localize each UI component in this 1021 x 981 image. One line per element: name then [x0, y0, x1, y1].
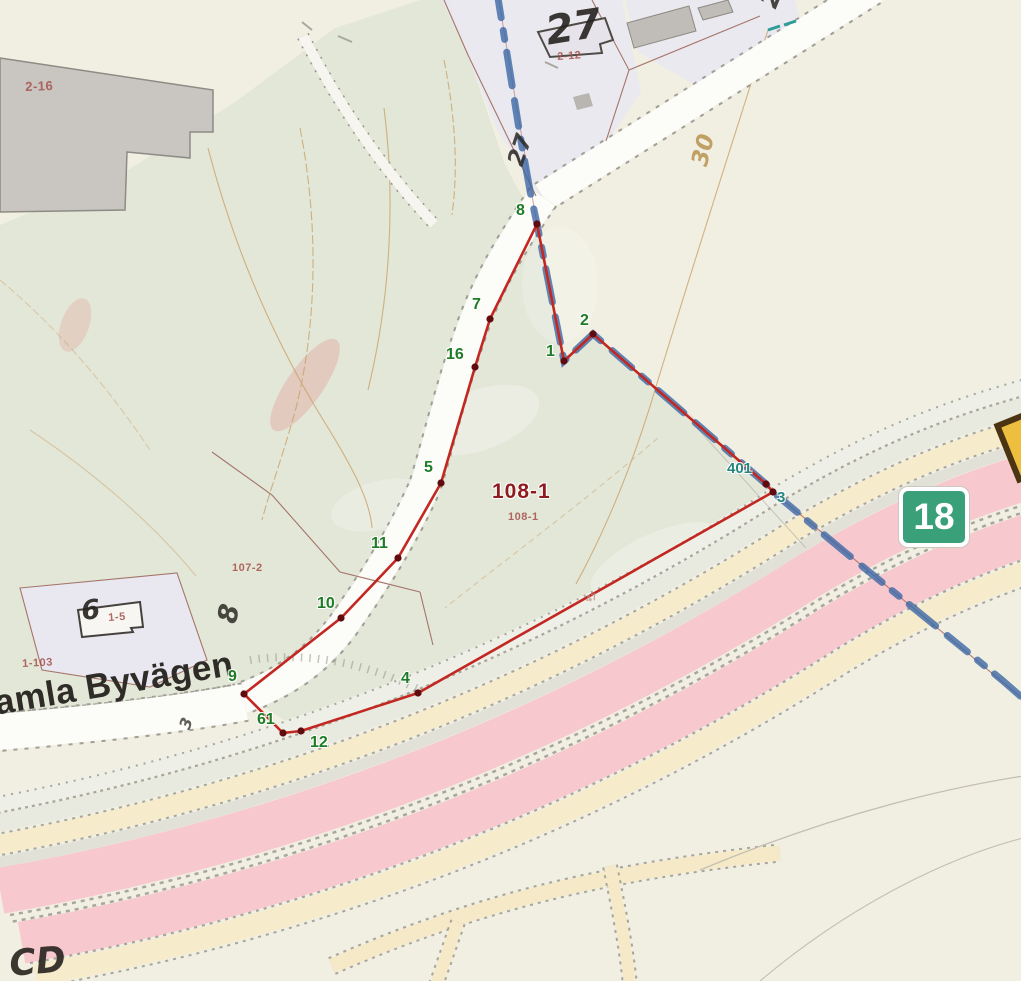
vertex-dot-61[interactable]: [279, 729, 286, 736]
vertex-dot-5[interactable]: [437, 479, 444, 486]
vertex-dot-401[interactable]: [762, 480, 769, 487]
vertex-dot-10[interactable]: [337, 614, 344, 621]
vertex-dot-9[interactable]: [240, 690, 247, 697]
vertex-dot-8[interactable]: [533, 220, 540, 227]
road-number-badge-18: 18: [899, 487, 969, 547]
map-artwork: [0, 0, 1021, 981]
vertex-dot-1[interactable]: [560, 357, 567, 364]
vertex-dot-12[interactable]: [297, 727, 304, 734]
vertex-dot-2[interactable]: [589, 330, 596, 337]
vertex-dot-7[interactable]: [486, 315, 493, 322]
vertex-dot-4[interactable]: [414, 689, 421, 696]
road-number-text: 18: [913, 496, 954, 538]
map-canvas[interactable]: 2-16272-12212730108-1108-1107-21-10361-5…: [0, 0, 1021, 981]
vertex-dot-16[interactable]: [471, 363, 478, 370]
vertex-dot-11[interactable]: [394, 554, 401, 561]
vertex-dot-3[interactable]: [769, 488, 776, 495]
